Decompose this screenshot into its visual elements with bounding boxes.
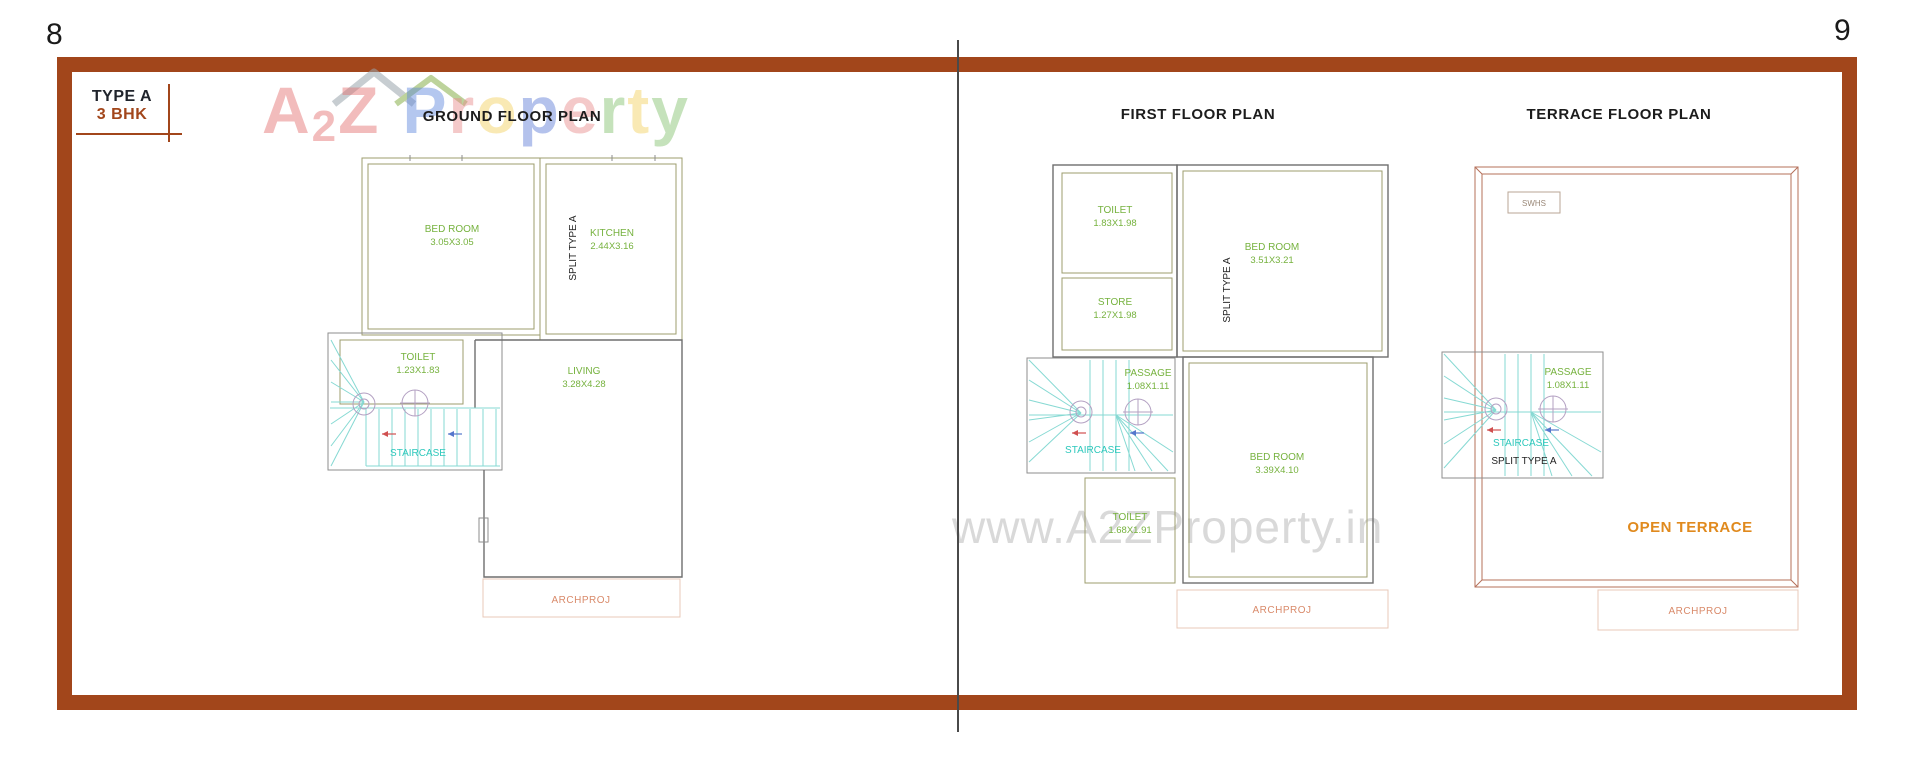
ff-toilet2-label: TOILET [1113, 512, 1148, 523]
gf-staircase-label: STAIRCASE [390, 448, 446, 459]
ground-floor-title: GROUND FLOOR PLAN [392, 108, 632, 125]
tf-archproj-label: ARCHPROJ [1668, 606, 1727, 617]
first-floor-title: FIRST FLOOR PLAN [1078, 106, 1318, 123]
tf-open-terrace-label: OPEN TERRACE [1627, 519, 1752, 536]
tf-door-swings [1485, 396, 1568, 422]
ff-bedroom1-dim: 3.51X3.21 [1250, 255, 1293, 266]
tf-swhs-label: SWHS [1522, 199, 1546, 208]
ff-staircase-label: STAIRCASE [1065, 445, 1121, 456]
ff-passage-label: PASSAGE [1124, 368, 1171, 379]
ff-bedroom1-label: BED ROOM [1245, 242, 1299, 253]
brand-letter: 2 [312, 102, 338, 151]
ff-stair-arrows [1072, 430, 1144, 436]
gf-toilet-label: TOILET [401, 352, 436, 363]
ff-bedroom2-dim: 3.39X4.10 [1255, 465, 1298, 476]
ground-floor-plan: BED ROOM 3.05X3.05 KITCHEN 2.44X3.16 SPL… [320, 145, 710, 625]
page-divider [957, 40, 959, 732]
ff-archproj-label: ARCHPROJ [1252, 605, 1311, 616]
terrace-floor-title: TERRACE FLOOR PLAN [1499, 106, 1739, 123]
first-floor-plan: TOILET 1.83X1.98 STORE 1.27X1.98 BED ROO… [1020, 145, 1410, 645]
ff-door-swings [1070, 399, 1153, 425]
gf-bedroom-label: BED ROOM [425, 224, 479, 235]
gf-kitchen-dim: 2.44X3.16 [590, 241, 633, 252]
gf-bedroom-dim: 3.05X3.05 [430, 237, 473, 248]
ff-passage-dim: 1.08X1.11 [1127, 381, 1170, 392]
ff-store-label: STORE [1098, 297, 1133, 308]
page-number-right: 9 [1834, 14, 1851, 48]
ff-block-outline [1053, 165, 1177, 357]
gf-toilet-dim: 1.23X1.83 [396, 365, 439, 376]
type-badge: TYPE A 3 BHK [76, 84, 168, 132]
gf-kitchen-label: KITCHEN [590, 228, 634, 239]
gf-living-dim: 3.28X4.28 [562, 379, 605, 390]
type-badge-line2: 3 BHK [76, 106, 168, 124]
gf-stair-arrows [382, 431, 462, 437]
terrace-floor-plan: SWHS [1435, 145, 1815, 645]
ff-bedroom2-label: BED ROOM [1250, 452, 1304, 463]
tf-split-label: SPLIT TYPE A [1491, 456, 1557, 467]
tf-passage-dim: 1.08X1.11 [1547, 380, 1590, 391]
brochure-spread: 8 9 A2ZProperty www.A2ZProperty.in TYPE … [0, 0, 1920, 768]
tf-staircase-label: STAIRCASE [1493, 438, 1549, 449]
brand-letter: y [651, 73, 690, 147]
tf-passage-label: PASSAGE [1544, 367, 1591, 378]
brand-letter: Z [338, 73, 380, 147]
gf-split-label: SPLIT TYPE A [568, 215, 579, 281]
tf-stair-arrows [1487, 427, 1559, 433]
type-badge-rule-v [168, 84, 170, 142]
brand-letter: A [262, 73, 312, 147]
gf-living-label: LIVING [568, 366, 601, 377]
ff-split-label: SPLIT TYPE A [1222, 257, 1233, 323]
type-badge-rule-h [76, 133, 182, 135]
ff-toilet1-dim: 1.83X1.98 [1093, 218, 1136, 229]
ff-toilet2-dim: 1.68X1.91 [1108, 525, 1151, 536]
ff-store-dim: 1.27X1.98 [1093, 310, 1136, 321]
page-number-left: 8 [46, 18, 63, 52]
ff-toilet1-label: TOILET [1098, 205, 1133, 216]
gf-archproj-label: ARCHPROJ [551, 595, 610, 606]
type-badge-line1: TYPE A [76, 88, 168, 106]
